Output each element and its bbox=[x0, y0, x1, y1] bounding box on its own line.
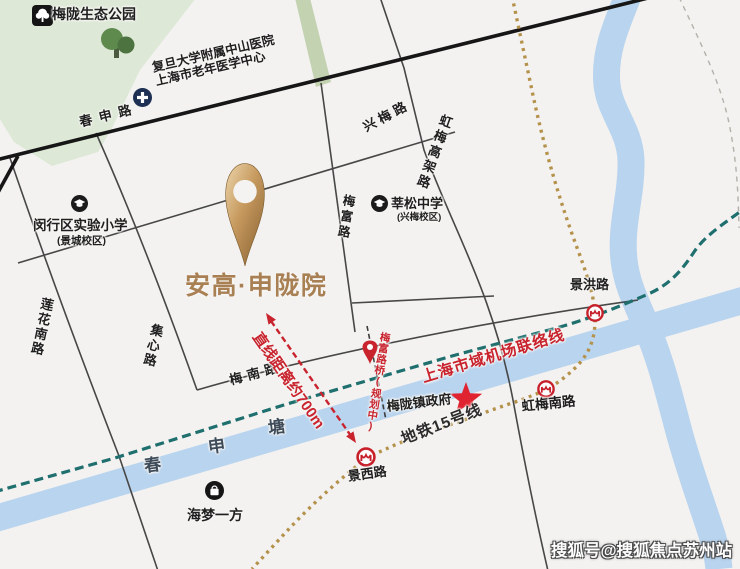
river-name-char-2: 申 bbox=[207, 437, 226, 458]
park-label: 梅陇生态公园 bbox=[52, 7, 136, 22]
station-label-jinghong: 景洪路 bbox=[570, 278, 609, 292]
shanghai-metro-logo bbox=[585, 303, 605, 323]
school-label-xinsong: 莘松中学 bbox=[391, 197, 443, 211]
school-label-minhang: 闵行区实验小学 bbox=[33, 219, 128, 234]
watermark: 搜狐号@搜狐焦点苏州站 bbox=[551, 537, 732, 561]
project-name: 安高·申陇院 bbox=[185, 273, 327, 301]
map-canvas: 梅陇生态公园 复旦大学附属中山医院 上海市老年医学中心 春申路 兴梅路 虹梅高架… bbox=[0, 0, 740, 569]
river-name-char-1: 春 bbox=[143, 456, 162, 477]
gold-location-pin bbox=[222, 161, 268, 267]
mall-label: 海梦一方 bbox=[187, 508, 243, 523]
school-campus-minhang: (景城校区) bbox=[57, 236, 106, 248]
graduation-cap-icon bbox=[71, 195, 88, 212]
map-graphics bbox=[0, 0, 740, 569]
tree-icon bbox=[32, 5, 53, 26]
graduation-cap-icon bbox=[371, 195, 388, 212]
shopping-bag-icon bbox=[205, 481, 224, 500]
school-campus-xinsong: (兴梅校区) bbox=[397, 213, 441, 223]
river-name-char-3: 塘 bbox=[267, 418, 286, 439]
